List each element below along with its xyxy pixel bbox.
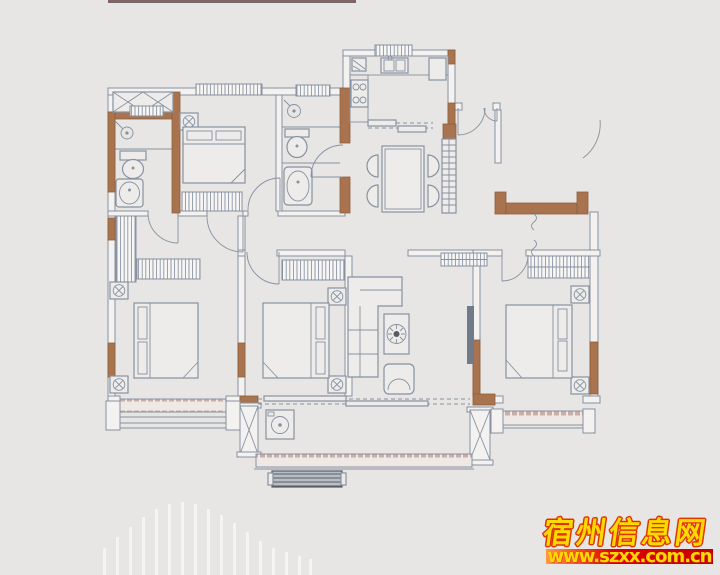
washing-machine-icon [266, 410, 294, 439]
chair-icon [428, 155, 439, 177]
bedside-table-icon [328, 376, 346, 393]
balcony-rail [256, 454, 472, 467]
floor-plan [0, 0, 720, 575]
sink-icon [116, 179, 143, 207]
decorative-bars [103, 502, 312, 575]
watermark-url-bar: www.szxx.com.cn [546, 549, 713, 564]
bedside-table-icon [571, 286, 589, 303]
armchair-icon [384, 364, 414, 394]
bay-window-left [106, 399, 240, 430]
bedroom-middle [263, 260, 346, 393]
bed-icon [183, 127, 245, 183]
bedside-table-icon [328, 288, 346, 305]
bed-icon [506, 305, 572, 378]
bed-icon [263, 303, 329, 378]
chair-icon [367, 155, 378, 177]
kitchen-sliding-door [368, 120, 433, 132]
door-arc [248, 178, 280, 210]
bedroom-left [110, 216, 200, 393]
wardrobe [182, 192, 242, 211]
shower-icon [115, 121, 133, 139]
toilet-icon [120, 151, 146, 179]
hall-cabinet [441, 253, 487, 266]
bay-window-right [491, 409, 595, 433]
bedside-table-icon [110, 282, 128, 299]
fridge-icon [429, 58, 446, 80]
dining-area [367, 146, 439, 212]
bathroom-2 [284, 100, 312, 205]
bedside-table-icon [571, 377, 589, 394]
window [375, 45, 412, 56]
bedroom-top [180, 113, 245, 211]
windows [196, 45, 412, 96]
unit-door-arc [583, 120, 600, 158]
shoe-cabinet [442, 139, 456, 213]
sink-icon [284, 167, 312, 205]
watermark-site-url: www.szxx.com.cn [548, 546, 712, 567]
bedroom-right [506, 256, 590, 394]
chair-icon [428, 185, 439, 207]
bed-icon [134, 303, 198, 378]
stove-icon [351, 80, 368, 107]
coffee-table-icon [384, 314, 409, 354]
wardrobe [528, 256, 590, 278]
window [296, 85, 330, 96]
top-crop-line [108, 0, 356, 3]
screenshot-root: 宿州信息网 www.szxx.com.cn [0, 0, 720, 575]
door-arc [148, 213, 178, 243]
door-arc [311, 145, 343, 177]
window [196, 84, 262, 95]
kitchen [350, 56, 448, 132]
door-arc [247, 252, 279, 284]
balcony [237, 396, 493, 487]
column [237, 403, 261, 457]
ac-platform [268, 471, 346, 487]
wardrobe [282, 260, 344, 280]
tv-icon [467, 306, 474, 364]
bathroom-1 [115, 121, 146, 207]
kitchen-sink-icon [381, 56, 408, 73]
door-arc [502, 255, 528, 281]
entry-double-door [458, 108, 497, 135]
entry [442, 108, 600, 256]
entry-closet [113, 92, 173, 116]
shower-icon [284, 100, 301, 118]
chair-icon [367, 185, 378, 207]
bedside-table-icon [110, 376, 128, 393]
living-room [348, 253, 487, 394]
balcony-sliding-door [258, 396, 470, 406]
toilet-icon [285, 129, 309, 158]
wardrobe [137, 259, 200, 279]
wardrobe [116, 216, 136, 282]
cutting-board-icon [352, 58, 366, 71]
dining-table-icon [382, 146, 424, 212]
